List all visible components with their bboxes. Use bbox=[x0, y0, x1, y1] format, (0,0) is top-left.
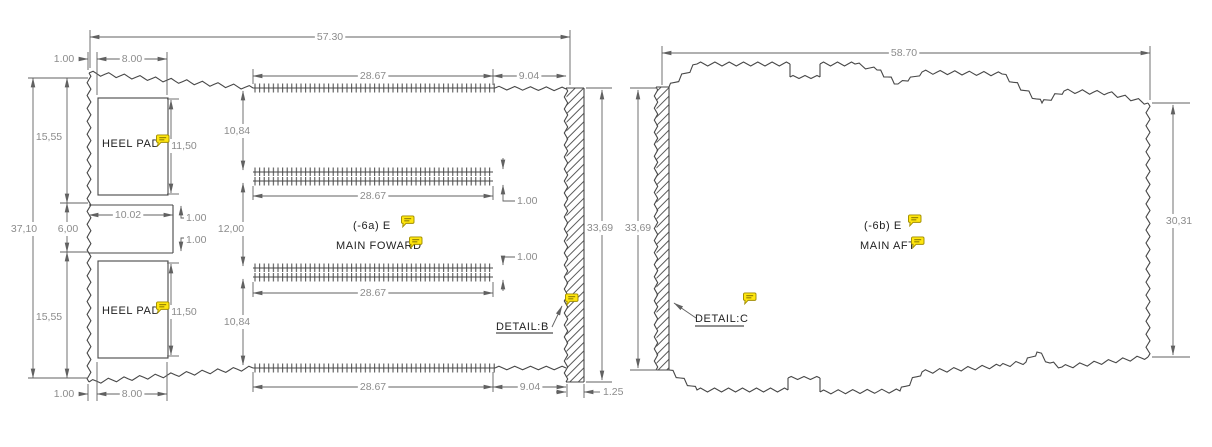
dim-text-detail-strip-width: 1.25 bbox=[603, 386, 624, 398]
dim-text-edge-top: 9.04 bbox=[519, 70, 540, 82]
dim-text-velcro-offset-upper: 10,84 bbox=[224, 125, 250, 137]
left-view-callout-line2: MAIN FOWARD bbox=[336, 240, 422, 252]
dim-strip-thickness-upper bbox=[503, 158, 515, 201]
dim-text-strip-thickness-upper: 1.00 bbox=[517, 195, 538, 207]
right-part-right-edge bbox=[1146, 103, 1150, 357]
right-part-bottom-edge-b bbox=[820, 352, 1148, 394]
heel-pad-bottom-label: HEEL PAD bbox=[102, 305, 160, 317]
comment-icon-heel-pad-bottom[interactable] bbox=[156, 302, 169, 313]
dim-text-notch-gap-bottom: 1.00 bbox=[186, 234, 207, 246]
detail-b-strip bbox=[564, 88, 584, 382]
left-part-left-edge bbox=[87, 73, 91, 382]
dim-text-velcro-mid-lower: 28.67 bbox=[360, 287, 386, 299]
dim-notch-gap-top bbox=[181, 206, 184, 218]
dim-height-right-right-view bbox=[1152, 103, 1190, 357]
dim-text-overall-width-right: 58.70 bbox=[891, 47, 917, 59]
detail-b-label: DETAIL:B bbox=[496, 321, 549, 333]
dim-detail-strip-width bbox=[556, 384, 600, 398]
dim-text-notch-height: 6,00 bbox=[58, 223, 79, 235]
dim-text-velcro-bottom: 28.67 bbox=[360, 381, 386, 393]
left-part-top-edge-right bbox=[495, 86, 566, 90]
velcro-strip-mid-lower bbox=[253, 264, 493, 282]
right-part-top-edge-b bbox=[820, 62, 1148, 104]
dim-text-height-right-left-view: 33,69 bbox=[587, 222, 613, 234]
comment-annotations bbox=[156, 135, 924, 313]
dim-text-height-right-right-view: 30,31 bbox=[1166, 215, 1192, 227]
left-view-geometry bbox=[87, 71, 584, 383]
dim-text-velcro-gap-mid: 12,00 bbox=[218, 223, 244, 235]
right-view-callout-line2: MAIN AFT bbox=[860, 240, 916, 252]
dim-text-overall-width-left: 57.30 bbox=[317, 31, 343, 43]
heel-pad-top-label: HEEL PAD bbox=[102, 138, 160, 150]
dim-text-edge-bottom: 9.04 bbox=[520, 381, 541, 393]
comment-icon-heel-pad-top[interactable] bbox=[156, 135, 169, 146]
comment-icon-detail-c[interactable] bbox=[743, 293, 756, 304]
dim-text-heel-height-bottom: 11,50 bbox=[171, 306, 197, 318]
right-part-bottom-edge-a bbox=[669, 370, 788, 392]
dim-text-bottom-offset: 1.00 bbox=[54, 388, 75, 400]
velcro-strip-mid-upper bbox=[253, 168, 493, 186]
dim-text-strip-thickness-lower: 1.00 bbox=[517, 251, 538, 263]
dim-text-height-left-right-view: 33,69 bbox=[625, 222, 651, 234]
right-view-callout-line1: (-6b) E bbox=[864, 220, 902, 232]
dim-text-section-lower: 15,55 bbox=[36, 311, 62, 323]
dim-notch-gap-bottom bbox=[181, 238, 184, 251]
detail-c-strip bbox=[654, 87, 669, 370]
dim-text-heel-width-bottom: 8.00 bbox=[122, 388, 143, 400]
dim-text-heel-width-top: 8.00 bbox=[122, 53, 143, 65]
dim-text-velcro-offset-lower: 10,84 bbox=[224, 316, 250, 328]
dim-text-notch-depth: 10.02 bbox=[115, 209, 141, 221]
right-part-bottom-notch bbox=[788, 378, 820, 392]
right-view-geometry bbox=[654, 62, 1150, 394]
right-part-top-edge-a bbox=[669, 62, 790, 87]
dim-text-top-offset: 1.00 bbox=[54, 53, 75, 65]
velcro-strip-bottom bbox=[253, 364, 495, 373]
dim-top-offset bbox=[79, 52, 88, 70]
dim-text-heel-height-top: 11,50 bbox=[171, 140, 197, 152]
dim-text-velcro-top: 28.67 bbox=[360, 70, 386, 82]
detail-c-label: DETAIL:C bbox=[695, 313, 749, 325]
dim-text-velcro-mid-upper: 28.67 bbox=[360, 190, 386, 202]
dim-strip-thickness-lower bbox=[503, 257, 515, 291]
right-part-bottom-notch-top bbox=[788, 377, 820, 380]
dim-text-overall-height: 37,10 bbox=[11, 223, 37, 235]
right-part-top-notch-floor bbox=[790, 76, 820, 79]
left-view-callout-line1: (-6a) E bbox=[353, 220, 391, 232]
dim-text-section-upper: 15,55 bbox=[36, 131, 62, 143]
drawing-canvas[interactable]: 57.30 1.00 8.00 28.67 9.04 37,10 15,55 6… bbox=[0, 0, 1212, 447]
left-part-top-taper bbox=[89, 71, 253, 89]
dim-text-notch-gap-top: 1.00 bbox=[186, 212, 207, 224]
left-part-bottom-taper bbox=[89, 366, 253, 383]
comment-icon-callout-6a[interactable] bbox=[401, 216, 414, 227]
comment-icon-main-aft[interactable] bbox=[911, 237, 924, 248]
dim-bottom-offset bbox=[79, 384, 88, 401]
left-part-bottom-edge-right bbox=[495, 366, 566, 370]
velcro-strip-top bbox=[253, 84, 495, 93]
comment-icon-callout-6b[interactable] bbox=[908, 215, 921, 226]
